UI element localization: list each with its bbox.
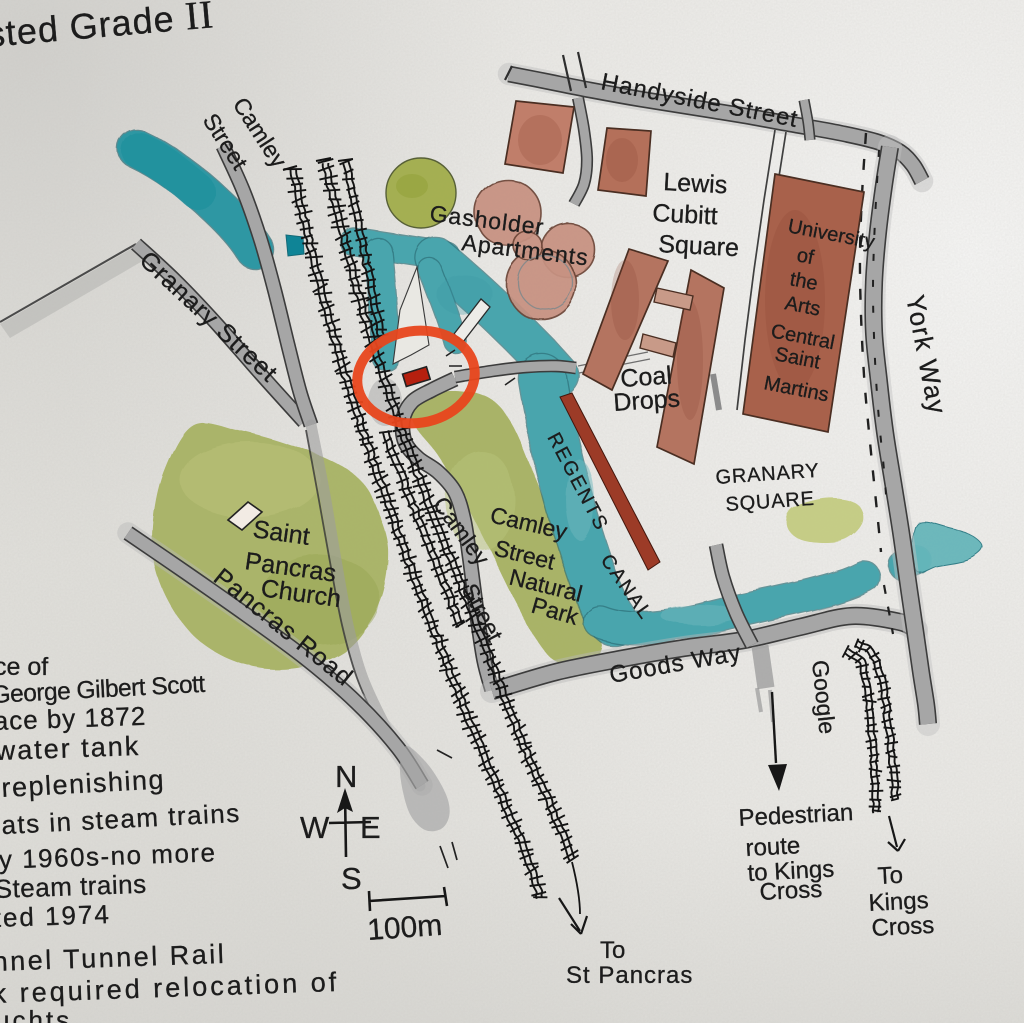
svg-text:ce of: ce of: [0, 653, 48, 681]
svg-text:Cross: Cross: [871, 912, 935, 942]
svg-text:water tank: water tank: [0, 731, 141, 766]
svg-text:Cubitt: Cubitt: [652, 199, 719, 230]
svg-text:W: W: [300, 810, 330, 845]
svg-text:ted 1974: ted 1974: [0, 899, 111, 933]
svg-text:uchts: uchts: [0, 1005, 72, 1023]
svg-text:Lewis: Lewis: [663, 168, 728, 199]
svg-text:To: To: [600, 937, 625, 964]
svg-text:N: N: [335, 759, 357, 794]
svg-text:Steam trains: Steam trains: [0, 869, 147, 904]
svg-text:Cross: Cross: [759, 876, 823, 906]
svg-text:S: S: [341, 861, 362, 896]
svg-text:E: E: [360, 810, 381, 845]
svg-text:Square: Square: [658, 230, 740, 262]
svg-text:Drops: Drops: [612, 384, 680, 417]
svg-text:St Pancras: St Pancras: [566, 962, 693, 989]
svg-text:To: To: [877, 862, 904, 890]
svg-text:100m: 100m: [366, 909, 443, 947]
